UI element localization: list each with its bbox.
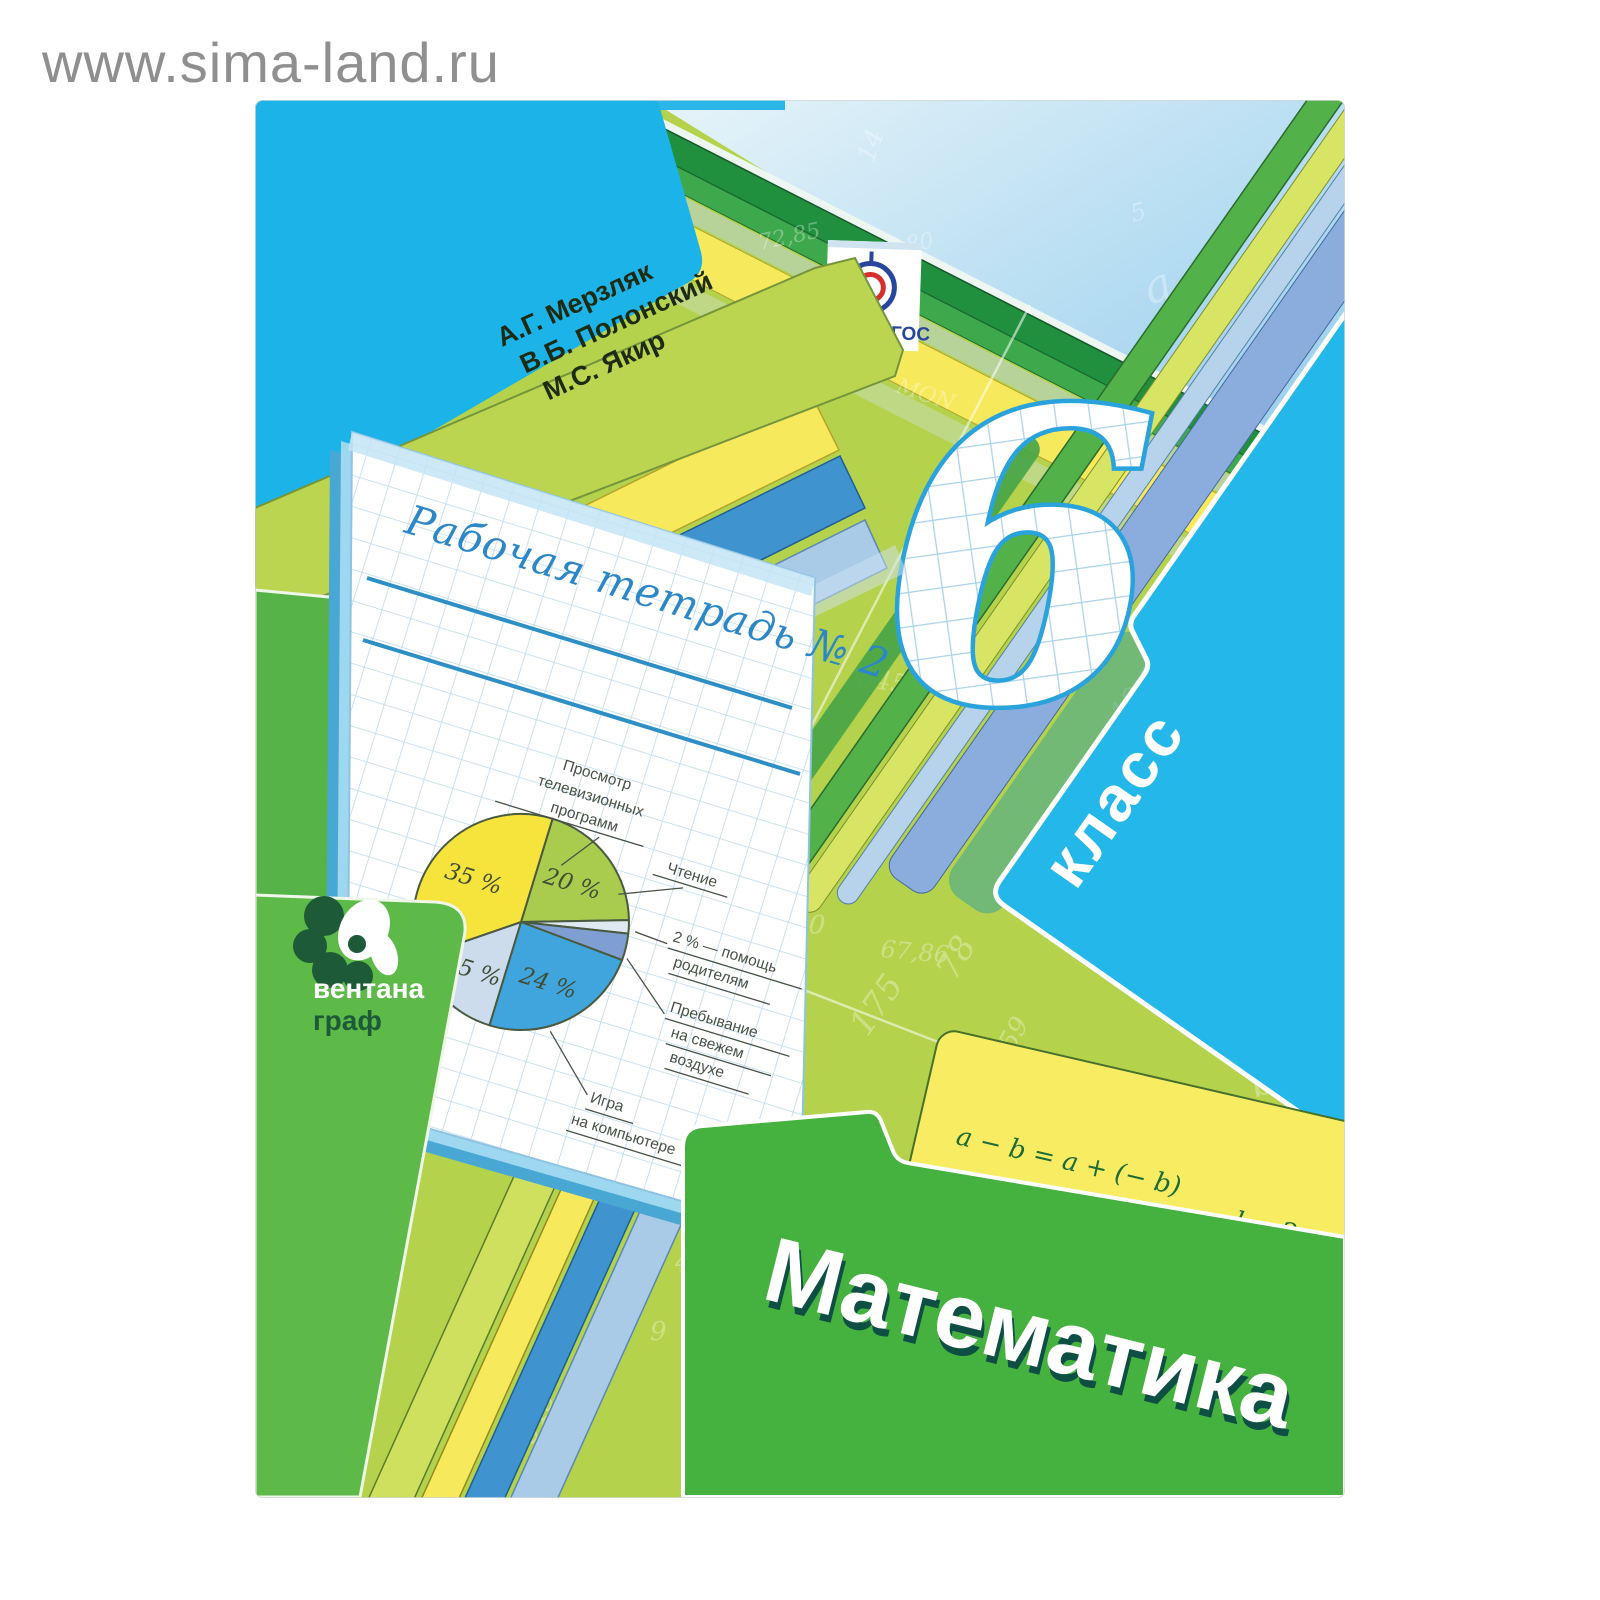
grade-number: 6 [881, 325, 1159, 795]
site-watermark: www.sima-land.ru [42, 30, 500, 95]
math-doodle: 9 [650, 1317, 667, 1347]
product-image: www.sima-land.ru [0, 0, 1600, 1600]
math-doodle: 67,86 [879, 935, 950, 969]
book-cover-art: 231 3,7 72,85 12,9 545 78 150 67,86 175 … [255, 100, 1345, 1498]
publisher-name-2: граф [313, 1005, 382, 1036]
publisher-name-1: вентана [313, 973, 425, 1004]
book-cover: 231 3,7 72,85 12,9 545 78 150 67,86 175 … [255, 100, 1345, 1498]
grade-number-wrap: 6 [881, 325, 1159, 795]
